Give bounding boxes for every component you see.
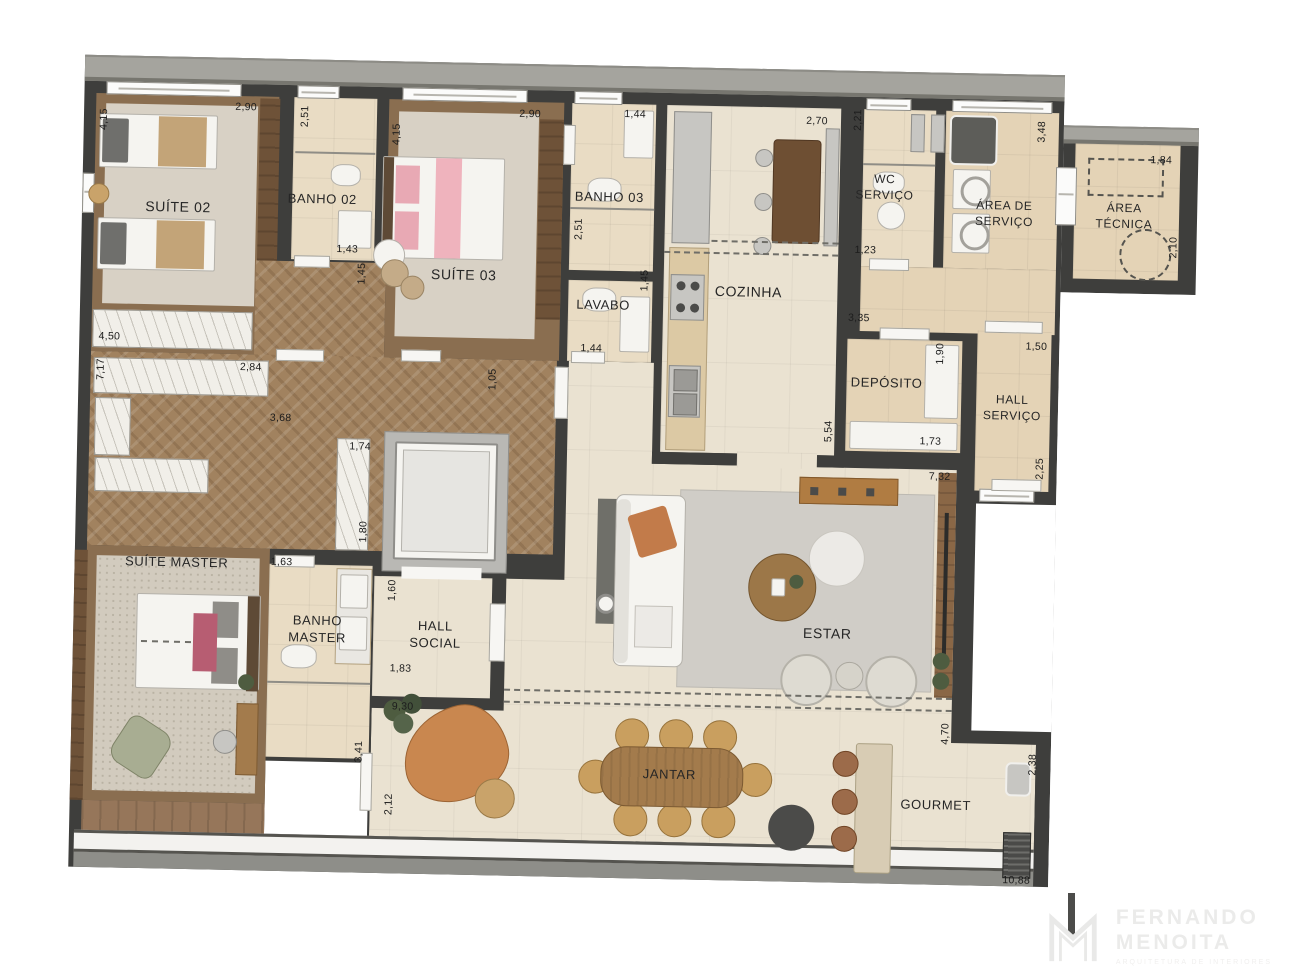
room-labels-layer: SUÍTE 02BANHO 02SUÍTE 03BANHO 03LAVABOCO… xyxy=(68,55,1220,894)
room-label-area-servico: ÁREA DE SERVIÇO xyxy=(975,198,1034,230)
apartment-floor-plan: 4,152,902,511,431,454,152,901,442,511,45… xyxy=(68,55,1220,894)
room-label-gourmet: GOURMET xyxy=(900,797,971,815)
room-label-banho02: BANHO 02 xyxy=(288,191,357,209)
room-label-jantar: JANTAR xyxy=(643,766,697,784)
room-label-suite03: SUÍTE 03 xyxy=(431,265,497,285)
watermark-tagline: ARQUITETURA DE INTERIORES xyxy=(1116,959,1272,966)
room-label-banho-master: BANHO MASTER xyxy=(288,612,346,647)
room-label-deposito: DEPÓSITO xyxy=(850,374,922,392)
room-label-wc-servico: WC SERVIÇO xyxy=(855,171,914,203)
room-label-lavabo: LAVABO xyxy=(576,297,630,315)
watermark: FERNANDO MENOITA ARQUITETURA DE INTERIOR… xyxy=(1044,905,1272,967)
room-label-area-tecnica: ÁREA TÉCNICA xyxy=(1095,200,1153,232)
room-label-suite02: SUÍTE 02 xyxy=(145,197,211,217)
watermark-name-line1: FERNANDO xyxy=(1116,906,1272,930)
room-label-hall-social: HALL SOCIAL xyxy=(409,618,461,653)
room-label-cozinha: COZINHA xyxy=(715,282,783,302)
room-label-estar: ESTAR xyxy=(803,624,852,643)
menotta-logo-icon xyxy=(1044,905,1102,967)
watermark-name-line2: MENOITA xyxy=(1116,931,1272,955)
room-label-suite-master: SUÍTE MASTER xyxy=(125,553,229,572)
room-label-hall-servico: HALL SERVIÇO xyxy=(983,392,1042,424)
floor-plan-canvas: 4,152,902,511,431,454,152,901,442,511,45… xyxy=(0,0,1300,975)
room-label-banho03: BANHO 03 xyxy=(575,189,644,207)
